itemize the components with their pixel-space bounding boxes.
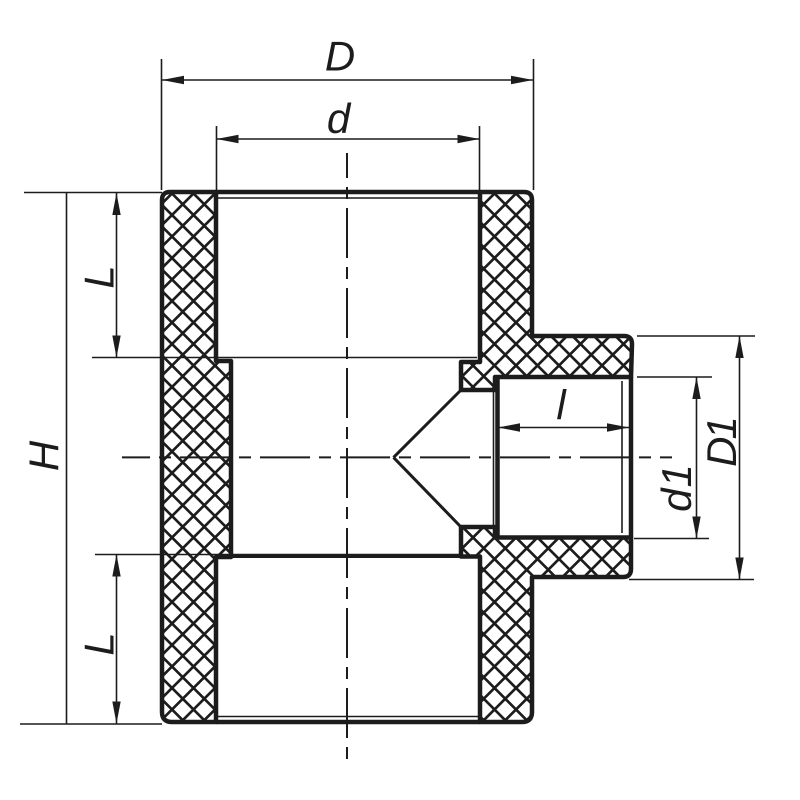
svg-text:D1: D1: [698, 419, 745, 467]
svg-text:L: L: [76, 265, 123, 288]
svg-text:D: D: [325, 33, 355, 80]
svg-text:L: L: [76, 632, 123, 655]
svg-text:H: H: [21, 440, 68, 471]
svg-text:d: d: [327, 95, 352, 142]
svg-text:d1: d1: [653, 463, 700, 512]
